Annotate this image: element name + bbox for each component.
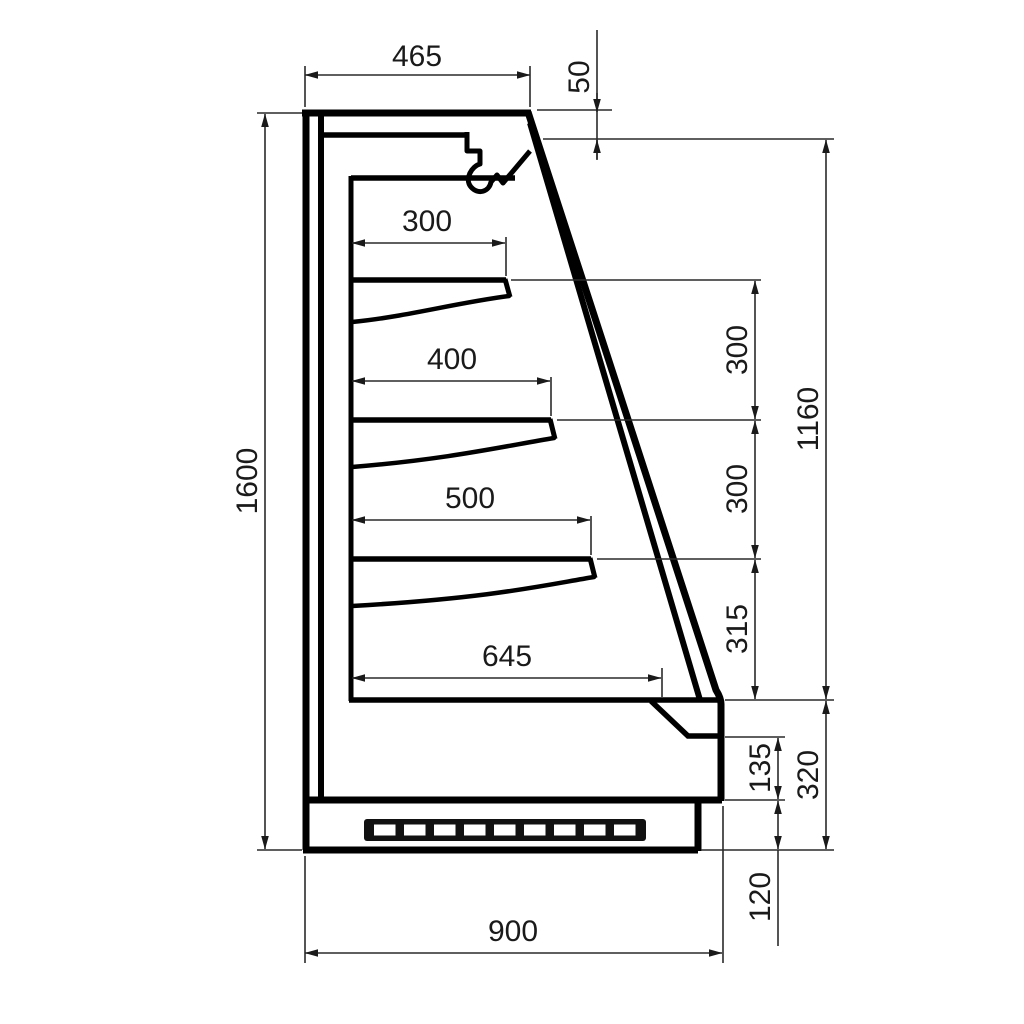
- dim-shelf2-depth: 400: [352, 343, 550, 381]
- dim-label-1160: 1160: [792, 387, 825, 452]
- dim-label-320: 320: [792, 750, 825, 800]
- dim-label-465: 465: [392, 40, 442, 73]
- ventilation-grille: [364, 819, 646, 841]
- dim-label-645: 645: [482, 640, 532, 673]
- dim-label-400: 400: [427, 343, 477, 376]
- dim-front-opening-height: 1160: [792, 140, 826, 699]
- cabinet-section-drawing: 465 50 300 400 500 645 900: [0, 0, 1024, 1024]
- dim-label-120: 120: [744, 872, 777, 922]
- shelf-2-underside-curve: [352, 438, 554, 467]
- dim-plinth-height: 120: [744, 801, 778, 922]
- dim-shelf1-depth: 300: [352, 205, 505, 243]
- dim-overall-height: 1600: [231, 114, 265, 849]
- shelf-1: [349, 279, 510, 322]
- dim-top-width: 465: [305, 40, 530, 75]
- shelves: [349, 279, 595, 606]
- dim-label-300-gap1: 300: [721, 325, 754, 375]
- dim-label-315: 315: [721, 604, 754, 654]
- dim-shelf3-depth: 500: [352, 482, 590, 520]
- grille-slots: [374, 825, 636, 836]
- dim-label-50: 50: [563, 60, 596, 93]
- shelf-3-underside-curve: [352, 577, 594, 606]
- shelf-1-underside-curve: [352, 296, 509, 322]
- front-glass-inner: [530, 123, 700, 700]
- dim-shelf-spacing-chain: 300 300 315: [721, 281, 755, 699]
- dim-overall-depth: 900: [305, 915, 722, 953]
- shelf-2: [349, 419, 555, 467]
- dim-base-section-height: 320: [792, 701, 826, 849]
- front-bottom-step: [651, 701, 722, 736]
- dim-front-panel-height: 135: [744, 738, 778, 799]
- canopy-front-detail: [467, 132, 530, 192]
- technical-drawing-page: 465 50 300 400 500 645 900: [0, 0, 1024, 1024]
- dim-label-500: 500: [445, 482, 495, 515]
- dim-label-135: 135: [744, 743, 777, 793]
- cabinet-outline: [302, 110, 722, 851]
- dim-label-1600: 1600: [231, 448, 264, 515]
- dim-label-900: 900: [488, 915, 538, 948]
- dim-base-shelf-depth: 645: [352, 640, 661, 678]
- dim-label-300-shelf1: 300: [402, 205, 452, 238]
- shelf-3: [349, 558, 595, 606]
- dim-label-300-gap2: 300: [721, 464, 754, 514]
